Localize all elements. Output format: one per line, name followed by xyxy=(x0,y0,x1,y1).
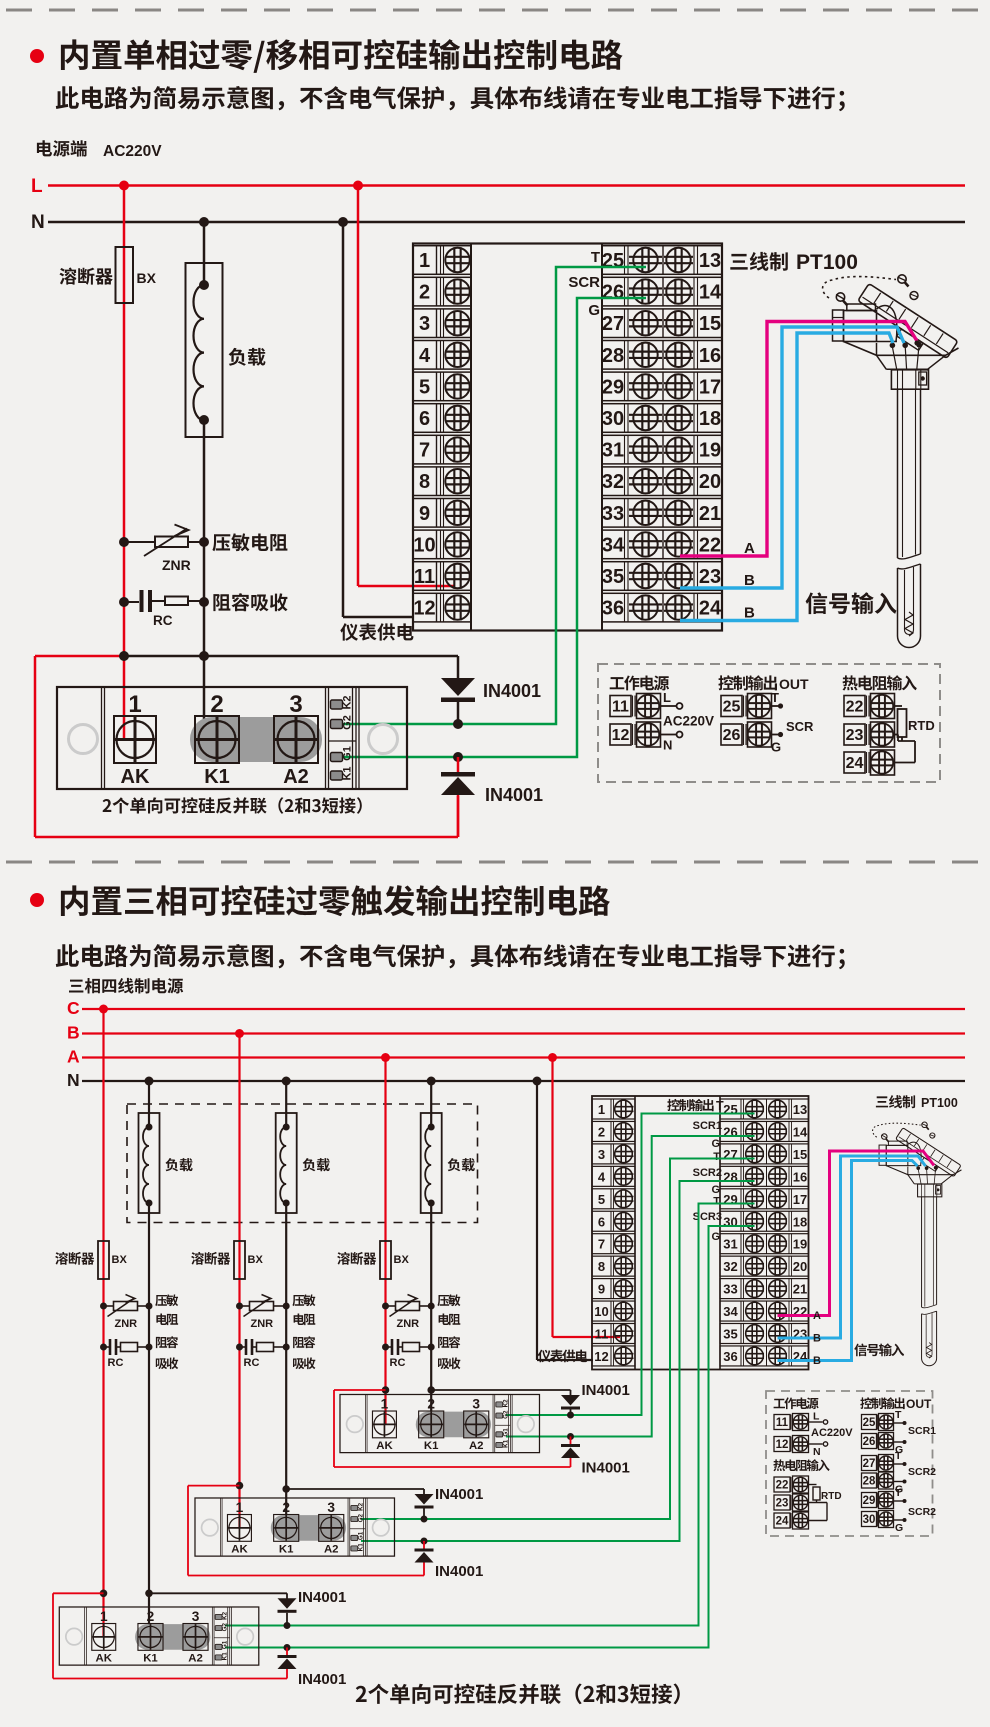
svg-text:12: 12 xyxy=(413,598,435,620)
svg-text:25: 25 xyxy=(602,250,624,272)
svg-text:G: G xyxy=(711,1138,720,1150)
svg-text:AC220V: AC220V xyxy=(663,714,714,729)
svg-text:33: 33 xyxy=(602,503,624,525)
svg-text:1: 1 xyxy=(419,250,430,272)
svg-text:4: 4 xyxy=(419,345,431,367)
svg-text:16: 16 xyxy=(793,1169,807,1184)
svg-text:A: A xyxy=(813,1310,821,1322)
svg-text:IN4001: IN4001 xyxy=(298,1671,346,1688)
svg-text:26: 26 xyxy=(863,1436,876,1448)
svg-text:OUT: OUT xyxy=(779,676,809,692)
svg-text:G: G xyxy=(711,1231,720,1243)
svg-text:18: 18 xyxy=(699,408,721,430)
svg-text:25: 25 xyxy=(723,1102,737,1117)
svg-text:L: L xyxy=(31,176,43,197)
svg-text:24: 24 xyxy=(699,598,722,620)
svg-text:RC: RC xyxy=(390,1357,406,1369)
svg-text:18: 18 xyxy=(793,1214,807,1229)
svg-text:11: 11 xyxy=(595,1327,609,1342)
svg-text:20: 20 xyxy=(699,471,721,493)
svg-text:8: 8 xyxy=(598,1259,605,1274)
svg-text:28: 28 xyxy=(723,1169,737,1184)
svg-text:36: 36 xyxy=(602,598,624,620)
svg-text:PT100: PT100 xyxy=(921,1096,958,1110)
svg-text:RC: RC xyxy=(244,1357,260,1369)
svg-text:11: 11 xyxy=(414,566,435,588)
svg-text:T: T xyxy=(713,1196,720,1208)
svg-text:4: 4 xyxy=(598,1169,606,1184)
svg-text:PT100: PT100 xyxy=(796,251,858,274)
svg-text:14: 14 xyxy=(699,282,722,304)
svg-text:G: G xyxy=(588,302,600,319)
svg-text:2: 2 xyxy=(419,282,430,304)
svg-text:IN4001: IN4001 xyxy=(298,1589,346,1606)
svg-text:27: 27 xyxy=(723,1147,737,1162)
svg-text:33: 33 xyxy=(723,1282,737,1297)
svg-text:32: 32 xyxy=(723,1259,737,1274)
svg-text:6: 6 xyxy=(598,1214,605,1229)
svg-text:7: 7 xyxy=(598,1237,605,1252)
svg-text:26: 26 xyxy=(602,282,624,304)
svg-text:T: T xyxy=(771,690,779,705)
svg-text:35: 35 xyxy=(723,1327,737,1342)
svg-text:15: 15 xyxy=(793,1147,807,1162)
svg-text:22: 22 xyxy=(846,699,864,716)
svg-text:B: B xyxy=(67,1023,80,1043)
svg-text:T: T xyxy=(716,1099,724,1113)
svg-text:32: 32 xyxy=(602,471,624,493)
svg-text:34: 34 xyxy=(723,1304,738,1319)
svg-text:10: 10 xyxy=(594,1304,608,1319)
svg-text:RTD: RTD xyxy=(821,1491,842,1502)
svg-text:9: 9 xyxy=(598,1282,605,1297)
svg-text:27: 27 xyxy=(863,1458,876,1470)
svg-text:AC220V: AC220V xyxy=(103,143,162,160)
svg-text:23: 23 xyxy=(699,566,721,588)
svg-text:3: 3 xyxy=(419,313,430,335)
svg-text:12: 12 xyxy=(612,727,630,744)
svg-text:23: 23 xyxy=(776,1498,789,1510)
svg-text:6: 6 xyxy=(419,408,430,430)
svg-text:RC: RC xyxy=(153,613,173,628)
svg-text:26: 26 xyxy=(723,727,741,744)
svg-text:A: A xyxy=(67,1047,80,1067)
svg-text:SCR: SCR xyxy=(786,719,814,734)
svg-text:IN4001: IN4001 xyxy=(435,1486,483,1503)
svg-text:20: 20 xyxy=(793,1259,807,1274)
svg-text:15: 15 xyxy=(699,313,721,335)
svg-text:25: 25 xyxy=(863,1417,876,1429)
svg-text:36: 36 xyxy=(723,1349,737,1364)
svg-text:13: 13 xyxy=(793,1102,807,1117)
svg-text:22: 22 xyxy=(776,1480,789,1492)
svg-text:3: 3 xyxy=(598,1147,605,1162)
svg-text:IN4001: IN4001 xyxy=(435,1563,483,1580)
svg-text:SCR2: SCR2 xyxy=(693,1167,722,1179)
svg-text:29: 29 xyxy=(723,1192,737,1207)
svg-text:25: 25 xyxy=(723,699,741,716)
svg-text:L: L xyxy=(813,1411,820,1423)
svg-text:10: 10 xyxy=(413,534,435,556)
svg-text:B: B xyxy=(744,605,755,622)
svg-text:8: 8 xyxy=(419,471,430,493)
svg-text:RTD: RTD xyxy=(908,718,935,733)
svg-text:IN4001: IN4001 xyxy=(582,1382,630,1399)
svg-text:ZNR: ZNR xyxy=(397,1318,420,1330)
svg-text:AC220V: AC220V xyxy=(811,1427,853,1439)
svg-text:24: 24 xyxy=(846,755,864,772)
svg-text:L: L xyxy=(663,690,671,705)
svg-text:B: B xyxy=(813,1355,821,1367)
svg-text:T: T xyxy=(895,1409,902,1421)
svg-text:16: 16 xyxy=(699,345,721,367)
svg-text:ZNR: ZNR xyxy=(251,1318,274,1330)
svg-text:IN4001: IN4001 xyxy=(485,785,543,805)
svg-text:B: B xyxy=(744,572,755,589)
svg-text:B: B xyxy=(813,1333,821,1345)
svg-text:23: 23 xyxy=(846,727,864,744)
svg-text:1: 1 xyxy=(598,1102,605,1117)
svg-text:5: 5 xyxy=(419,376,430,398)
svg-text:17: 17 xyxy=(793,1192,807,1207)
svg-text:C: C xyxy=(67,998,80,1018)
svg-text:SCR2: SCR2 xyxy=(908,1466,936,1478)
svg-text:26: 26 xyxy=(723,1124,737,1139)
svg-text:G: G xyxy=(711,1184,720,1196)
svg-text:27: 27 xyxy=(602,313,624,335)
svg-text:ZNR: ZNR xyxy=(115,1318,138,1330)
svg-text:35: 35 xyxy=(602,566,624,588)
svg-text:19: 19 xyxy=(699,440,721,462)
svg-text:G: G xyxy=(771,740,781,755)
svg-text:BX: BX xyxy=(137,270,157,286)
svg-text:19: 19 xyxy=(793,1237,807,1252)
svg-text:28: 28 xyxy=(863,1476,876,1488)
svg-text:T: T xyxy=(895,1450,902,1462)
svg-text:12: 12 xyxy=(776,1439,789,1451)
svg-text:T: T xyxy=(591,249,600,266)
svg-text:11: 11 xyxy=(612,699,629,716)
svg-text:RC: RC xyxy=(108,1357,124,1369)
svg-text:BX: BX xyxy=(394,1254,410,1266)
svg-text:21: 21 xyxy=(793,1282,807,1297)
svg-text:31: 31 xyxy=(723,1237,737,1252)
svg-text:A: A xyxy=(744,540,755,557)
svg-text:T: T xyxy=(895,1487,902,1499)
svg-text:7: 7 xyxy=(419,440,430,462)
svg-text:5: 5 xyxy=(598,1192,605,1207)
svg-text:29: 29 xyxy=(602,376,624,398)
svg-text:30: 30 xyxy=(863,1514,876,1526)
svg-text:29: 29 xyxy=(863,1495,876,1507)
svg-text:IN4001: IN4001 xyxy=(582,1460,630,1477)
svg-text:SCR2: SCR2 xyxy=(908,1506,936,1518)
svg-text:30: 30 xyxy=(602,408,624,430)
svg-text:OUT: OUT xyxy=(906,1397,932,1411)
svg-text:T: T xyxy=(713,1151,720,1163)
svg-text:ZNR: ZNR xyxy=(162,557,191,573)
svg-text:9: 9 xyxy=(419,503,430,525)
svg-text:22: 22 xyxy=(699,534,721,556)
svg-text:14: 14 xyxy=(793,1124,808,1139)
svg-text:IN4001: IN4001 xyxy=(483,681,541,701)
svg-text:17: 17 xyxy=(699,376,721,398)
svg-text:24: 24 xyxy=(776,1516,789,1528)
svg-text:BX: BX xyxy=(248,1254,264,1266)
svg-text:BX: BX xyxy=(112,1254,128,1266)
svg-text:G: G xyxy=(895,1522,903,1534)
svg-text:28: 28 xyxy=(602,345,624,367)
svg-text:N: N xyxy=(663,738,672,753)
svg-text:SCR1: SCR1 xyxy=(693,1120,722,1132)
svg-text:2: 2 xyxy=(598,1124,605,1139)
svg-text:N: N xyxy=(813,1446,821,1458)
svg-text:SCR: SCR xyxy=(568,274,600,291)
svg-text:21: 21 xyxy=(699,503,721,525)
svg-text:N: N xyxy=(67,1070,80,1090)
svg-text:SCR1: SCR1 xyxy=(908,1425,936,1437)
svg-text:N: N xyxy=(31,212,45,233)
svg-text:SCR3: SCR3 xyxy=(693,1211,722,1223)
svg-text:11: 11 xyxy=(776,1417,789,1429)
svg-text:34: 34 xyxy=(602,534,625,556)
svg-text:13: 13 xyxy=(699,250,721,272)
svg-text:31: 31 xyxy=(602,440,624,462)
svg-text:12: 12 xyxy=(594,1349,608,1364)
